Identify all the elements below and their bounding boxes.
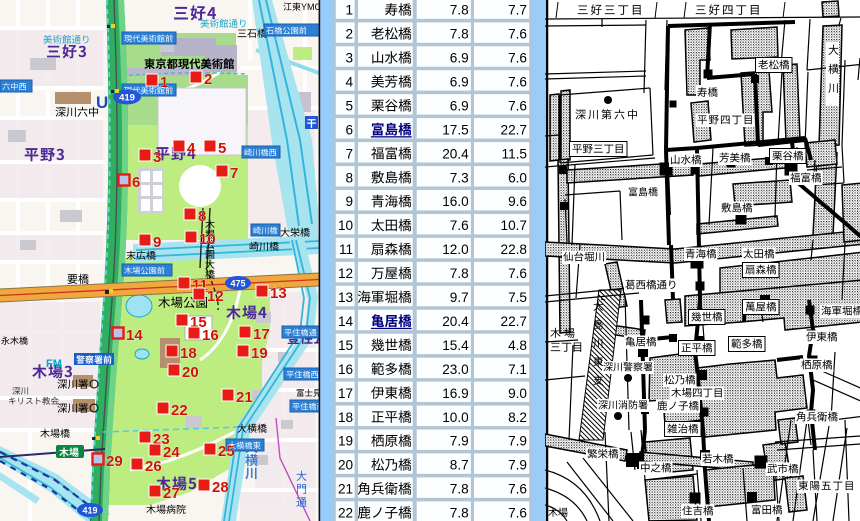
svg-text:7.6: 7.6 [508,75,527,90]
svg-text:1: 1 [160,74,168,91]
svg-text:U: U [96,93,108,112]
svg-text:19: 19 [338,434,353,449]
svg-text:10: 10 [199,231,216,248]
svg-text:2: 2 [204,71,212,88]
svg-text:419: 419 [119,93,135,104]
svg-text:17: 17 [338,386,353,401]
svg-text:22.7: 22.7 [501,314,527,329]
svg-text:6.9: 6.9 [450,98,469,113]
svg-text:4.8: 4.8 [508,338,527,353]
svg-text:7.6: 7.6 [508,266,527,281]
svg-text:7.6: 7.6 [508,506,527,521]
svg-text:7.9: 7.9 [450,434,469,449]
svg-text:12: 12 [207,288,224,305]
svg-text:22.7: 22.7 [501,122,527,137]
svg-text:7.5: 7.5 [508,290,527,305]
svg-text:10.0: 10.0 [442,410,469,425]
svg-text:17: 17 [253,326,270,343]
svg-text:FM: FM [46,358,62,370]
svg-text:7.8: 7.8 [450,266,469,281]
svg-text:23.0: 23.0 [442,362,469,377]
svg-text:6: 6 [132,174,140,191]
svg-text:15: 15 [338,338,353,353]
svg-text:7.6: 7.6 [450,218,469,233]
svg-text:3: 3 [153,149,161,166]
svg-text:10.7: 10.7 [501,218,527,233]
svg-text:21: 21 [236,389,253,406]
svg-text:26: 26 [145,458,162,475]
svg-text:8: 8 [198,208,206,225]
svg-text:8: 8 [346,170,354,185]
svg-text:11.5: 11.5 [502,146,527,161]
svg-text:22: 22 [171,402,188,419]
svg-text:6.9: 6.9 [450,75,469,90]
svg-text:27: 27 [163,485,180,502]
svg-text:24: 24 [163,444,180,461]
svg-text:7.3: 7.3 [450,170,469,185]
svg-text:9.0: 9.0 [508,386,527,401]
svg-text:18: 18 [338,410,353,425]
svg-text:6: 6 [346,122,354,137]
svg-text:3: 3 [346,51,354,66]
svg-text:5: 5 [218,140,226,157]
svg-text:10: 10 [338,218,354,233]
svg-text:475: 475 [230,279,245,289]
svg-text:22.8: 22.8 [501,242,527,257]
svg-text:13: 13 [270,285,287,302]
svg-text:20.4: 20.4 [442,314,469,329]
svg-text:8.7: 8.7 [450,458,469,473]
svg-text:12.0: 12.0 [442,242,469,257]
svg-text:7: 7 [346,146,354,161]
svg-text:7.6: 7.6 [508,51,527,66]
svg-text:7.1: 7.1 [508,362,527,377]
svg-text:20: 20 [182,364,199,381]
svg-text:7: 7 [230,165,238,182]
svg-text:14: 14 [338,314,354,329]
svg-text:22: 22 [338,506,353,521]
svg-text:7.6: 7.6 [508,27,527,42]
svg-text:16.9: 16.9 [442,386,468,401]
svg-text:6.0: 6.0 [508,170,527,185]
svg-text:16: 16 [202,327,219,344]
svg-text:25: 25 [218,443,235,460]
svg-text:7.7: 7.7 [508,3,527,18]
svg-text:7.8: 7.8 [450,506,469,521]
svg-text:9: 9 [153,234,161,251]
svg-text:19: 19 [251,345,268,362]
svg-text:17.5: 17.5 [442,122,468,137]
svg-text:13: 13 [338,290,353,305]
svg-text:15.4: 15.4 [442,338,469,353]
svg-text:419: 419 [82,506,97,516]
svg-text:4: 4 [187,140,196,157]
svg-text:7.6: 7.6 [508,482,527,497]
svg-text:7.8: 7.8 [450,482,469,497]
svg-text:18: 18 [180,345,197,362]
svg-text:7.9: 7.9 [508,458,527,473]
svg-text:4: 4 [346,75,354,90]
svg-text:9: 9 [346,194,354,209]
svg-text:20.4: 20.4 [442,146,469,161]
svg-text:20: 20 [338,458,354,473]
svg-text:6.9: 6.9 [450,51,469,66]
svg-text:8.2: 8.2 [508,410,527,425]
svg-text:16.0: 16.0 [442,194,469,209]
svg-text:16: 16 [338,362,353,377]
svg-text:1: 1 [346,3,354,18]
svg-text:11: 11 [339,242,353,257]
svg-text:14: 14 [126,327,143,344]
svg-text:9.6: 9.6 [508,194,527,209]
svg-text:5: 5 [346,98,354,113]
svg-text:29: 29 [106,453,123,470]
svg-text:21: 21 [338,482,353,497]
svg-text:7.8: 7.8 [450,3,469,18]
svg-text:7.9: 7.9 [508,434,527,449]
svg-text:9.7: 9.7 [450,290,469,305]
svg-text:28: 28 [212,479,229,496]
svg-text:7.6: 7.6 [508,98,527,113]
svg-text:12: 12 [338,266,353,281]
svg-text:2: 2 [346,27,354,42]
svg-text:7.8: 7.8 [450,27,469,42]
